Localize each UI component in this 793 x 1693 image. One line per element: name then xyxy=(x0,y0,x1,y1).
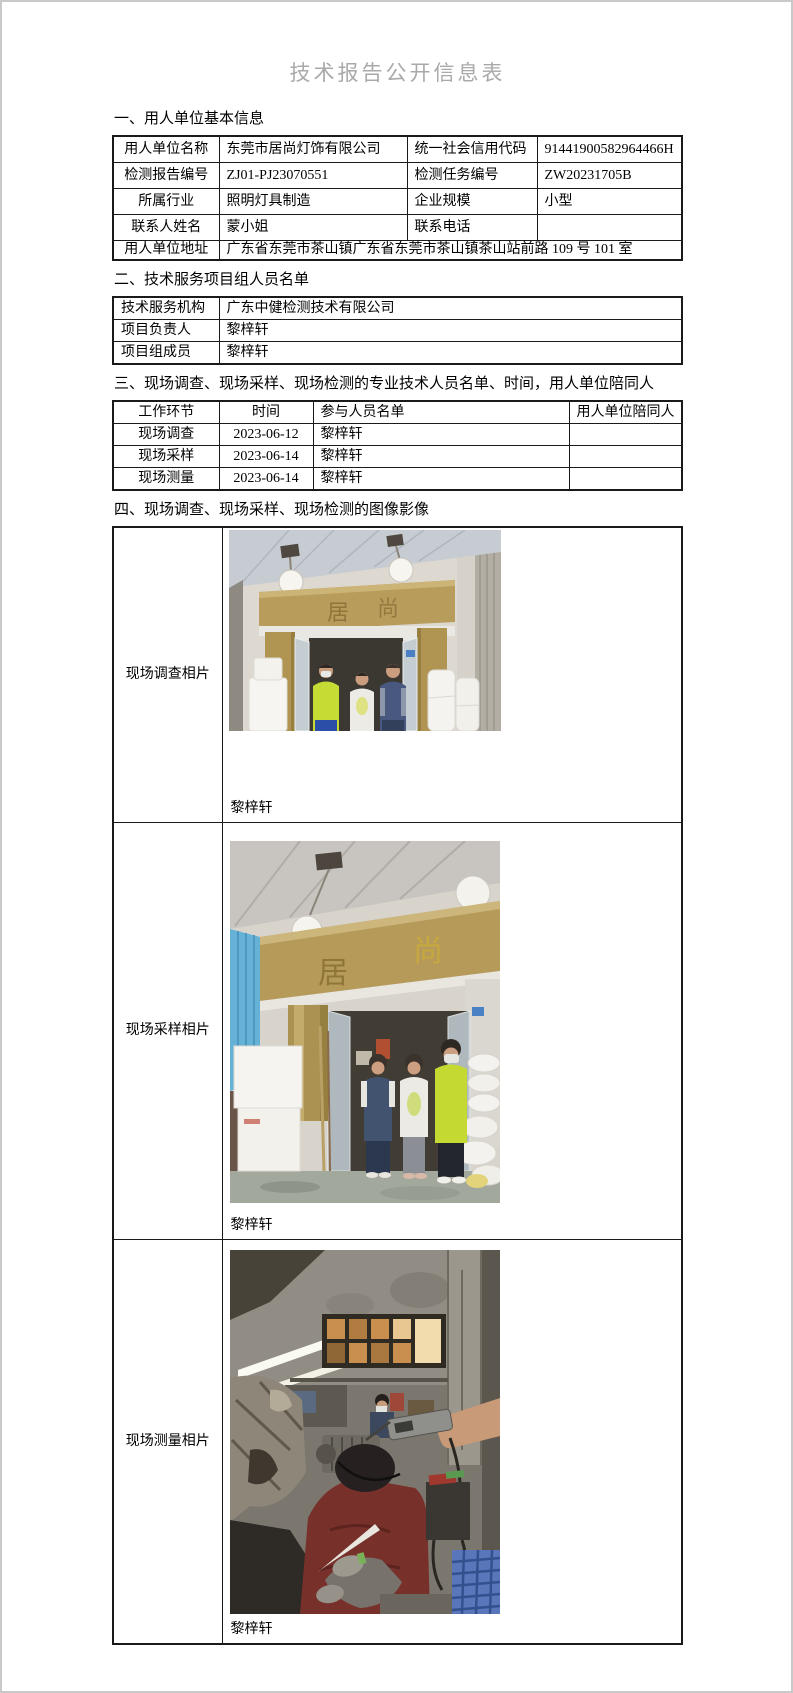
measure-photo-cell: 黎梓轩 xyxy=(222,1240,682,1645)
employer-name-label: 用人单位名称 xyxy=(113,136,219,163)
people-survey: 黎梓轩 xyxy=(313,424,569,446)
report-no-value: ZJ01-PJ23070551 xyxy=(219,163,407,189)
project-leader-label: 项目负责人 xyxy=(113,320,219,342)
foam-stack xyxy=(249,678,287,731)
employer-info-table: 用人单位名称 东莞市居尚灯饰有限公司 统一社会信用代码 914419005829… xyxy=(112,135,683,261)
escort-sampling xyxy=(569,446,682,468)
measure-photo xyxy=(230,1250,500,1614)
people-measure: 黎梓轩 xyxy=(313,468,569,491)
table-row: 检测报告编号 ZJ01-PJ23070551 检测任务编号 ZW20231705… xyxy=(113,163,682,189)
photo-row-survey: 现场调查相片 xyxy=(113,527,682,823)
service-org-label: 技术服务机构 xyxy=(113,297,219,320)
foam-box xyxy=(238,1108,300,1171)
service-org-value: 广东中健检测技术有限公司 xyxy=(219,297,682,320)
table-header-row: 工作环节 时间 参与人员名单 用人单位陪同人 xyxy=(113,401,682,424)
col-header-step: 工作环节 xyxy=(113,401,219,424)
address-label: 用人单位地址 xyxy=(113,241,219,261)
report-no-label: 检测报告编号 xyxy=(113,163,219,189)
contact-name-label: 联系人姓名 xyxy=(113,215,219,241)
industry-label: 所属行业 xyxy=(113,189,219,215)
contact-phone-value xyxy=(537,215,682,241)
photo-caption: 黎梓轩 xyxy=(231,801,273,817)
table-row: 现场采样 2023-06-14 黎梓轩 xyxy=(113,446,682,468)
open-door xyxy=(295,638,309,731)
date-survey: 2023-06-12 xyxy=(219,424,313,446)
photo-row-sampling: 现场采样相片 xyxy=(113,823,682,1240)
table-row: 项目负责人 黎梓轩 xyxy=(113,320,682,342)
open-door xyxy=(328,1011,350,1171)
escort-survey xyxy=(569,424,682,446)
section2-heading: 二、技术服务项目组人员名单 xyxy=(114,271,683,290)
table-row: 联系人姓名 蒙小姐 联系电话 xyxy=(113,215,682,241)
scale-value: 小型 xyxy=(537,189,682,215)
sampling-photo: 居 尚 xyxy=(230,841,500,1203)
col-header-people: 参与人员名单 xyxy=(313,401,569,424)
document-content: 技术报告公开信息表 一、用人单位基本信息 用人单位名称 东莞市居尚灯饰有限公司 … xyxy=(112,2,683,1645)
employer-name-value: 东莞市居尚灯饰有限公司 xyxy=(219,136,407,163)
step-sampling: 现场采样 xyxy=(113,446,219,468)
people-sampling: 黎梓轩 xyxy=(313,446,569,468)
photo-caption: 黎梓轩 xyxy=(231,1218,273,1234)
table-row: 用人单位地址 广东省东莞市茶山镇广东省东莞市茶山镇茶山站前路 109 号 101… xyxy=(113,241,682,261)
survey-photo: 居 尚 xyxy=(229,530,501,731)
window-band xyxy=(322,1314,446,1368)
document-page: 技术报告公开信息表 一、用人单位基本信息 用人单位名称 东莞市居尚灯饰有限公司 … xyxy=(0,0,793,1693)
sign-char-left: 居 xyxy=(318,957,348,990)
section3-heading: 三、现场调查、现场采样、现场检测的专业技术人员名单、时间，用人单位陪同人 xyxy=(114,375,683,394)
table-row: 所属行业 照明灯具制造 企业规模 小型 xyxy=(113,189,682,215)
globe-lamp xyxy=(389,558,413,582)
measure-photo-label: 现场测量相片 xyxy=(113,1240,222,1645)
blue-crate xyxy=(452,1550,500,1614)
credit-code-label: 统一社会信用代码 xyxy=(407,136,537,163)
escort-measure xyxy=(569,468,682,491)
section4-heading: 四、现场调查、现场采样、现场检测的图像影像 xyxy=(114,501,683,520)
foam-rolls xyxy=(428,670,479,731)
section1-heading: 一、用人单位基本信息 xyxy=(114,110,683,129)
survey-photo-label: 现场调查相片 xyxy=(113,527,222,823)
date-measure: 2023-06-14 xyxy=(219,468,313,491)
task-no-value: ZW20231705B xyxy=(537,163,682,189)
sign-char-left: 居 xyxy=(327,600,349,625)
industry-value: 照明灯具制造 xyxy=(219,189,407,215)
credit-code-value: 91441900582964466H xyxy=(537,136,682,163)
scale-label: 企业规模 xyxy=(407,189,537,215)
contact-phone-label: 联系电话 xyxy=(407,215,537,241)
contact-name-value: 蒙小姐 xyxy=(219,215,407,241)
service-team-table: 技术服务机构 广东中健检测技术有限公司 项目负责人 黎梓轩 项目组成员 黎梓轩 xyxy=(112,296,683,365)
sign-char-right: 尚 xyxy=(377,596,399,621)
door-sign xyxy=(472,1007,484,1016)
sign-char-right: 尚 xyxy=(413,935,443,968)
project-members-value: 黎梓轩 xyxy=(219,342,682,365)
task-no-label: 检测任务编号 xyxy=(407,163,537,189)
table-row: 现场调查 2023-06-12 黎梓轩 xyxy=(113,424,682,446)
table-row: 技术服务机构 广东中健检测技术有限公司 xyxy=(113,297,682,320)
step-survey: 现场调查 xyxy=(113,424,219,446)
project-leader-value: 黎梓轩 xyxy=(219,320,682,342)
ceiling-vent xyxy=(315,852,343,871)
table-row: 用人单位名称 东莞市居尚灯饰有限公司 统一社会信用代码 914419005829… xyxy=(113,136,682,163)
schedule-table: 工作环节 时间 参与人员名单 用人单位陪同人 现场调查 2023-06-12 黎… xyxy=(112,400,683,491)
ceiling-vent xyxy=(386,534,403,547)
col-header-escort: 用人单位陪同人 xyxy=(569,401,682,424)
step-measure: 现场测量 xyxy=(113,468,219,491)
date-sampling: 2023-06-14 xyxy=(219,446,313,468)
page-title: 技术报告公开信息表 xyxy=(112,58,683,88)
project-members-label: 项目组成员 xyxy=(113,342,219,365)
photo-table: 现场调查相片 xyxy=(112,526,683,1645)
door-sign xyxy=(406,650,415,657)
address-value: 广东省东莞市茶山镇广东省东莞市茶山镇茶山站前路 109 号 101 室 xyxy=(219,241,682,261)
col-header-date: 时间 xyxy=(219,401,313,424)
photo-caption: 黎梓轩 xyxy=(231,1622,273,1638)
foam-box xyxy=(234,1046,302,1108)
table-row: 项目组成员 黎梓轩 xyxy=(113,342,682,365)
table-row: 现场测量 2023-06-14 黎梓轩 xyxy=(113,468,682,491)
survey-photo-cell: 居 尚 xyxy=(222,527,682,823)
ceiling-vent xyxy=(280,544,299,558)
sampling-photo-label: 现场采样相片 xyxy=(113,823,222,1240)
sampling-photo-cell: 居 尚 xyxy=(222,823,682,1240)
photo-row-measure: 现场测量相片 xyxy=(113,1240,682,1645)
